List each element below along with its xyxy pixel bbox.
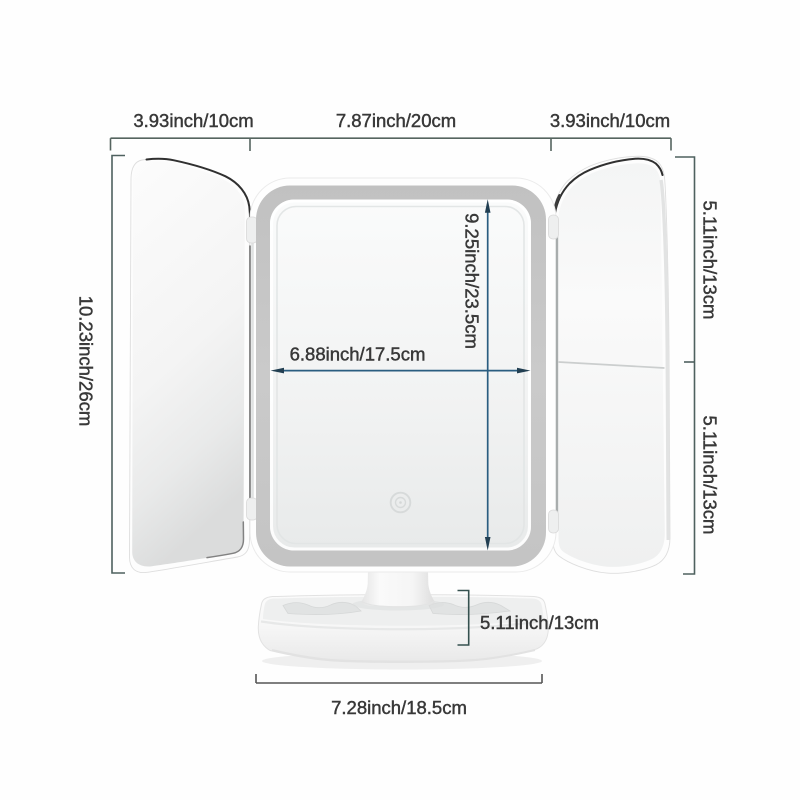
svg-text:3.93inch/10cm: 3.93inch/10cm: [133, 110, 253, 131]
svg-text:5.11inch/13cm: 5.11inch/13cm: [480, 612, 599, 633]
svg-text:6.88inch/17.5cm: 6.88inch/17.5cm: [290, 344, 426, 365]
svg-text:5.11inch/13cm: 5.11inch/13cm: [700, 201, 721, 320]
svg-text:10.23inch/26cm: 10.23inch/26cm: [76, 296, 97, 427]
svg-text:7.28inch/18.5cm: 7.28inch/18.5cm: [331, 697, 467, 718]
svg-text:7.87inch/20cm: 7.87inch/20cm: [336, 110, 456, 131]
svg-text:9.25inch/23.5cm: 9.25inch/23.5cm: [462, 213, 483, 349]
svg-text:5.11inch/13cm: 5.11inch/13cm: [700, 416, 721, 535]
svg-text:3.93inch/10cm: 3.93inch/10cm: [550, 110, 670, 131]
